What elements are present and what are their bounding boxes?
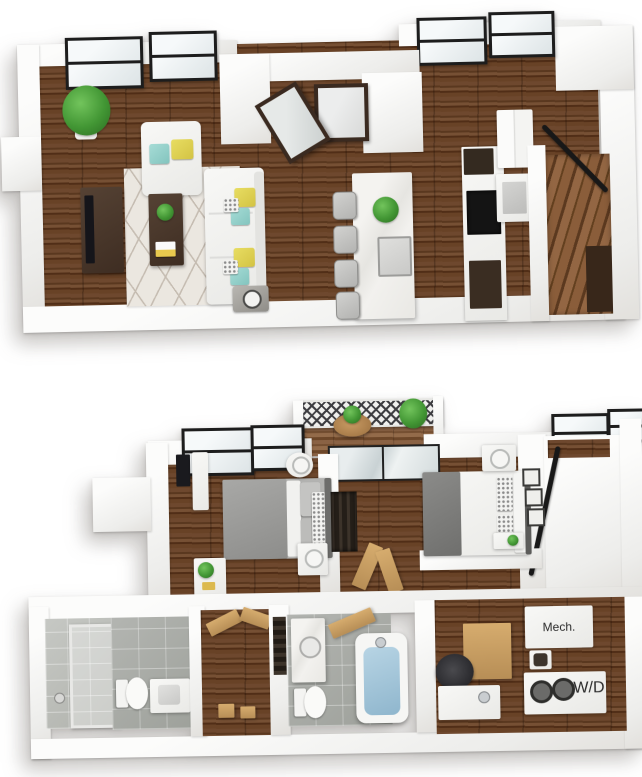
island-sink [377,236,412,277]
bedroom1-wall-tv-icon [176,454,191,486]
floor-plan-rendering: Mech. W/D [0,0,642,777]
art-frame [522,468,540,486]
tv-icon [84,195,95,263]
wing-bottom-wall [31,728,642,759]
lower-floor-plan: Mech. W/D [7,382,642,765]
bedroom1-wardrobe [192,452,209,510]
bar-stool [333,225,358,254]
utility-stool-top [533,653,547,666]
upper-cabinet-dark [463,148,494,175]
armchair-teal-pillow [149,144,169,164]
bar-stool [336,291,361,320]
lower-cabinet-dark [469,260,502,309]
bathroom1-sink [158,685,180,705]
upper-roof-corner [555,25,634,91]
mech-label: Mech. [542,620,575,635]
entry-right-column [362,72,424,153]
wd-label-box: W/D [572,677,606,700]
living-window-1 [65,36,144,90]
upper-floor-plan [14,5,641,351]
wd-label: W/D [573,679,604,698]
utility-table [438,685,501,720]
storage-box [218,704,234,718]
art-frame [527,508,545,526]
toilet1-bowl [126,677,149,709]
closet-hanging-clothes [331,491,358,551]
linen-closet-clothes [273,617,287,675]
mechanical-closet-box: Mech. [525,605,594,648]
living-window-2 [149,30,218,82]
dresser-book [202,582,215,590]
lower-right-outer-wall [619,418,642,598]
magazines [155,241,175,256]
bar-stool [334,259,359,288]
bed2-patterned-pillow [496,477,513,511]
bathtub-water [363,647,400,716]
bed1-gray-duvet [222,479,287,560]
bed2-gray-throw [422,472,461,557]
toilet2-bowl [304,686,327,718]
upper-left-wall-notch [1,137,42,192]
kitchen-window-1 [416,16,487,66]
sofa-patterned-pillow [223,198,238,212]
bar-stool [332,191,357,220]
oven-door [502,182,527,215]
art-frame [525,488,543,506]
storage-box [240,706,255,718]
stair-landing-dark [586,246,613,313]
entry-left-column [219,53,271,144]
left-wall-notch [92,477,151,532]
armchair-yellow-pillow [171,139,193,159]
sofa-patterned-pillow [223,260,238,274]
kitchen-window-2 [488,11,555,58]
